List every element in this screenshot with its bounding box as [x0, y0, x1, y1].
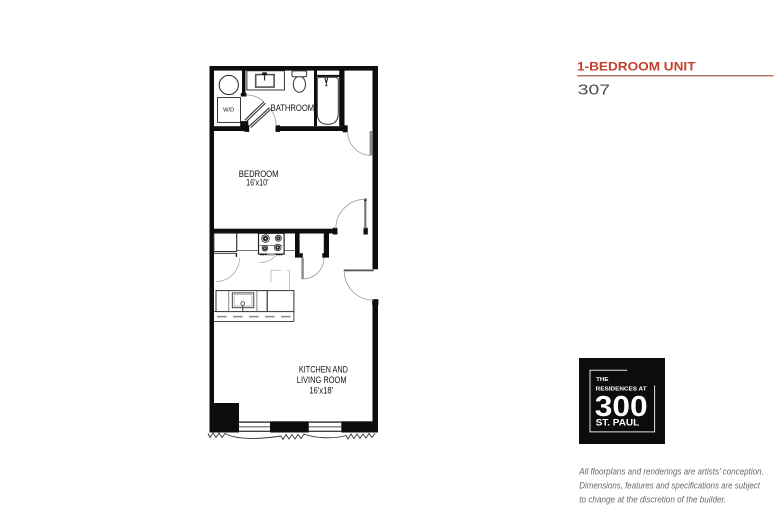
- svg-text:1-BEDROOM UNIT: 1-BEDROOM UNIT: [577, 62, 696, 74]
- svg-text:16'x18': 16'x18': [309, 385, 333, 395]
- svg-text:BATHROOM: BATHROOM: [271, 103, 315, 113]
- svg-text:16'x10': 16'x10': [246, 177, 269, 187]
- svg-text:All floorplans and renderings: All floorplans and renderings are artist…: [578, 466, 763, 476]
- svg-text:THE: THE: [596, 377, 608, 383]
- svg-text:307: 307: [578, 81, 610, 98]
- svg-text:Dimensions, features and speci: Dimensions, features and specifications …: [579, 481, 760, 491]
- svg-text:KITCHEN AND: KITCHEN AND: [299, 365, 348, 375]
- svg-text:ST. PAUL: ST. PAUL: [596, 418, 640, 428]
- svg-text:W/D: W/D: [223, 108, 234, 114]
- svg-text:LIVING ROOM: LIVING ROOM: [297, 375, 347, 385]
- svg-text:to change at the discretion of: to change at the discretion of the build…: [579, 494, 726, 504]
